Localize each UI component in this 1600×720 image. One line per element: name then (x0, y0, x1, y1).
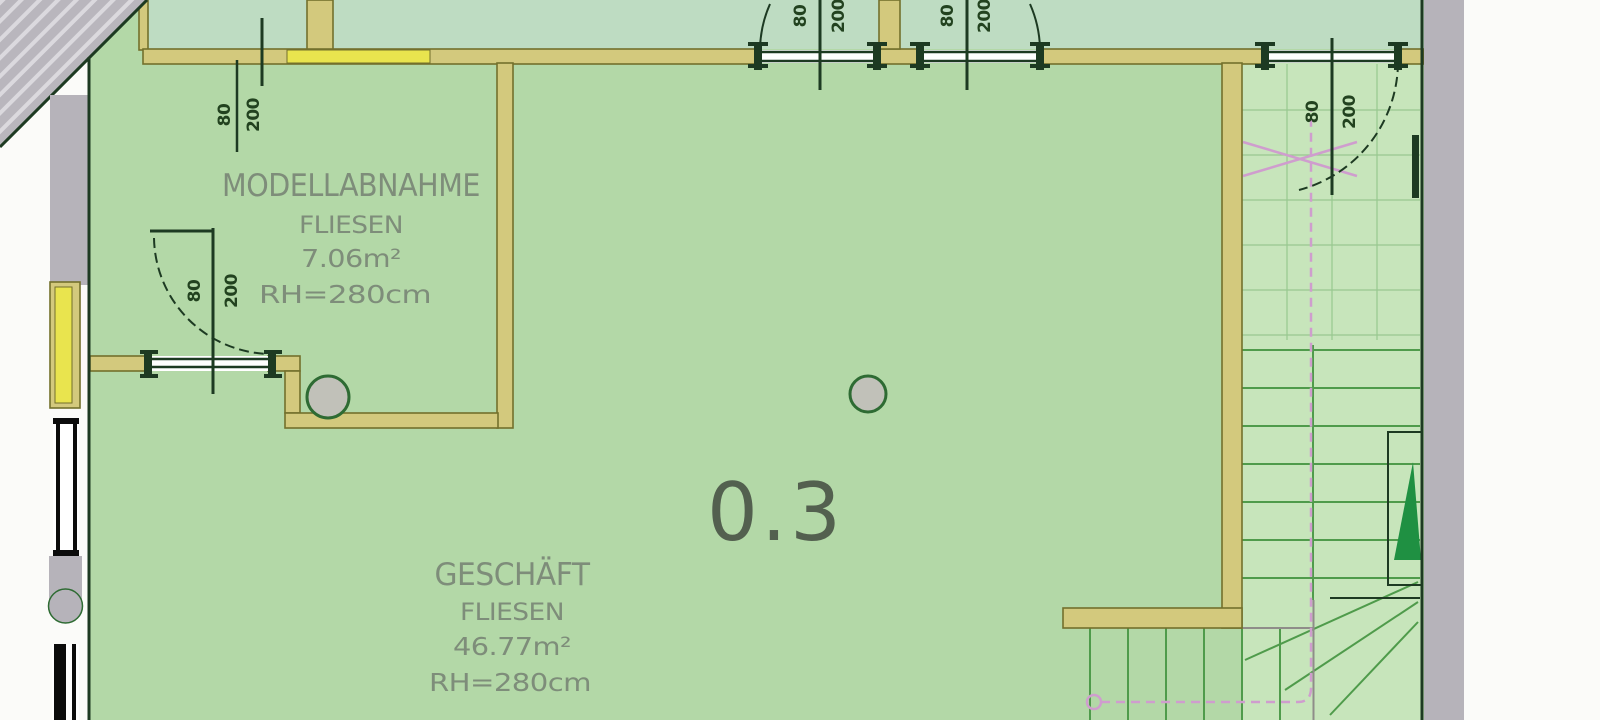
left-exterior-wall (50, 95, 88, 285)
door-width-label: 80 (1303, 100, 1323, 123)
entry-door-leaf (55, 287, 72, 403)
door-height-label: 200 (975, 0, 995, 33)
column (307, 376, 349, 418)
window (52, 644, 79, 720)
room-number: 0.3 (707, 466, 847, 559)
top-wall-segment (877, 49, 920, 64)
door-width-label: 80 (938, 4, 958, 27)
stair-wall-horizontal (1063, 608, 1242, 628)
outside-area (1464, 0, 1600, 720)
room-area: 7.06m² (301, 244, 401, 273)
room-name: GESCHÄFT (435, 557, 591, 593)
room-area: 46.77m² (453, 632, 571, 661)
room-divider-wall-vertical (497, 63, 513, 428)
room-name: MODELLABNAHME (222, 168, 480, 204)
floorplan-svg: 80 200 80 200 80 200 (0, 0, 1600, 720)
door-height-label: 200 (829, 0, 849, 33)
door-height-label: 200 (222, 273, 242, 308)
floorplan: 80 200 80 200 80 200 (0, 0, 1600, 720)
room-wall-step (285, 371, 300, 413)
wall-nib (1412, 135, 1419, 198)
right-exterior-wall (1424, 0, 1464, 720)
room-finish: FLIESEN (299, 211, 403, 239)
wall-pier (49, 556, 83, 623)
room-wall-left (90, 356, 148, 371)
top-wall-segment (143, 49, 758, 64)
door-height-label: 200 (1340, 94, 1360, 129)
top-wall-bright-segment (287, 50, 430, 63)
room-height: RH=280cm (259, 280, 431, 309)
stair-wall-vertical (1222, 63, 1242, 628)
left-wall-openings (49, 282, 83, 720)
door-width-label: 80 (185, 279, 205, 302)
top-wall-segment (1040, 49, 1265, 64)
area-beyond-top-wall (143, 0, 1424, 49)
column (850, 376, 886, 412)
wall-stub-between-doors (879, 0, 900, 49)
door-width-label: 80 (215, 103, 235, 126)
door-height-label: 200 (244, 97, 264, 132)
window (53, 418, 79, 556)
room-finish: FLIESEN (460, 598, 564, 626)
door-width-label: 80 (791, 4, 811, 27)
wall-stub-above (307, 0, 333, 49)
room-height: RH=280cm (429, 668, 591, 697)
